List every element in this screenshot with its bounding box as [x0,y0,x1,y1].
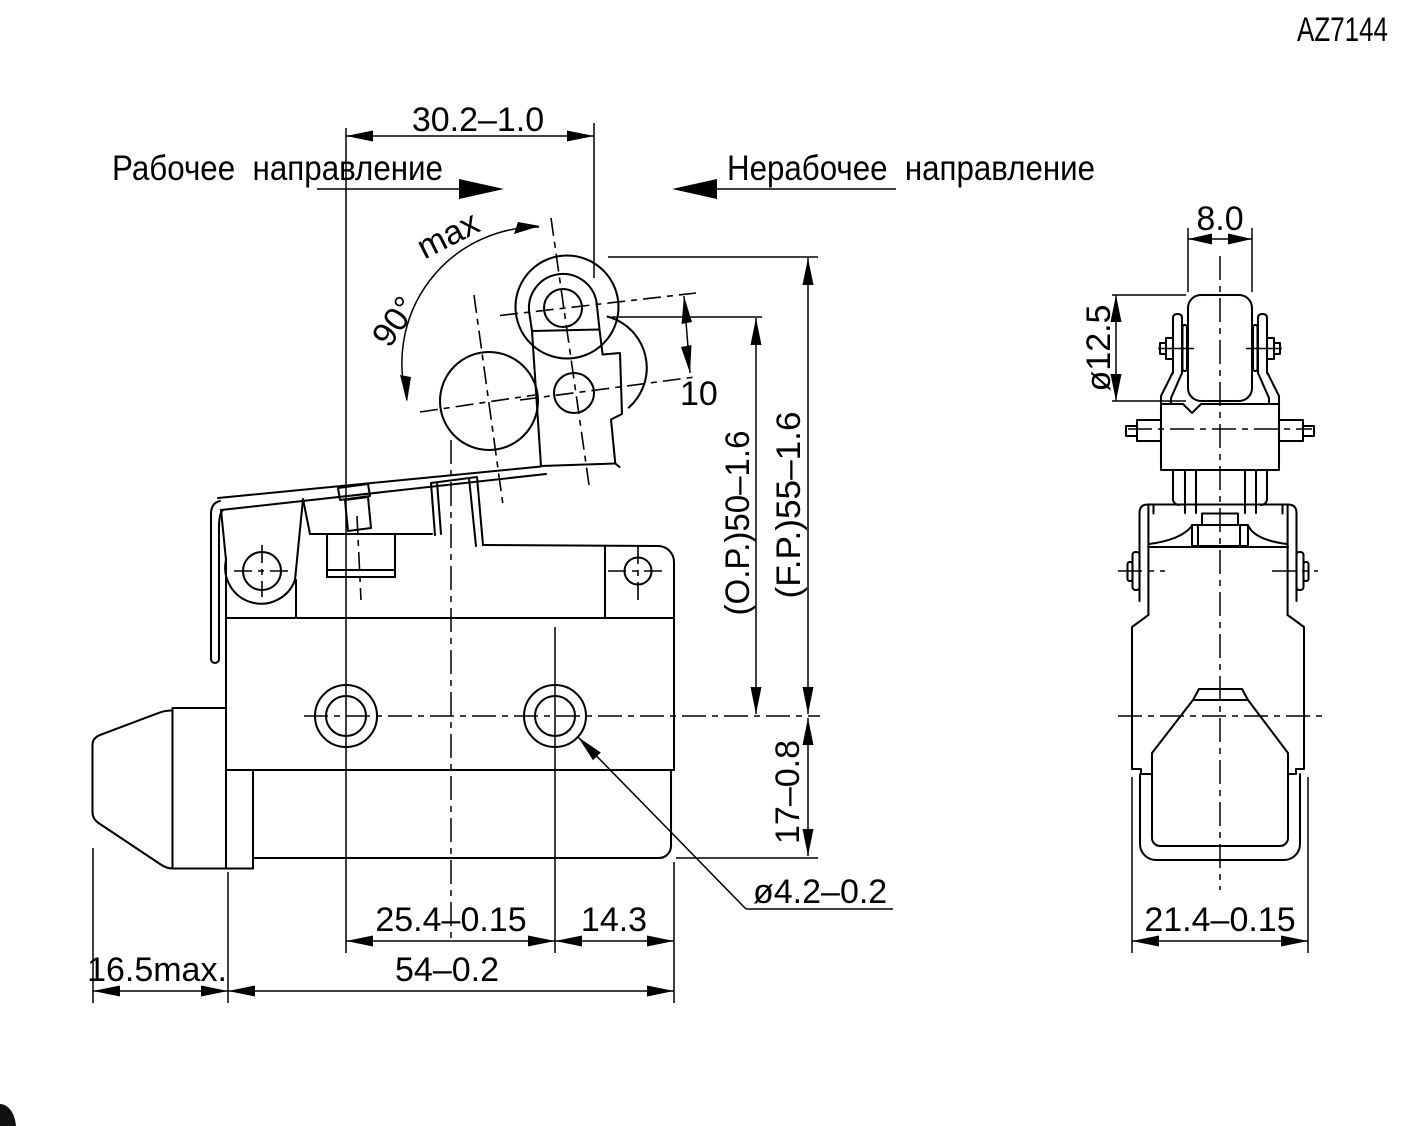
svg-text:AZ7144: AZ7144 [1297,11,1388,49]
svg-text:10: 10 [680,375,718,413]
svg-text:17–0.8: 17–0.8 [769,740,807,844]
svg-text:21.4–0.15: 21.4–0.15 [1144,901,1295,939]
svg-text:54–0.2: 54–0.2 [395,951,499,989]
svg-text:16.5max.: 16.5max. [87,951,227,989]
svg-text:(F.P.)55–1.6: (F.P.)55–1.6 [770,412,808,599]
svg-text:ø4.2–0.2: ø4.2–0.2 [753,873,887,911]
svg-text:14.3: 14.3 [581,901,647,939]
svg-text:30.2–1.0: 30.2–1.0 [412,101,544,139]
svg-text:(O.P.)50–1.6: (O.P.)50–1.6 [719,431,757,616]
svg-text:Рабочее направление: Рабочее направление [112,149,443,188]
svg-text:25.4–0.15: 25.4–0.15 [375,901,526,939]
svg-text:8.0: 8.0 [1196,200,1243,238]
svg-text:ø12.5: ø12.5 [1080,305,1118,392]
svg-text:Нерабочее направление: Нерабочее направление [727,149,1095,188]
